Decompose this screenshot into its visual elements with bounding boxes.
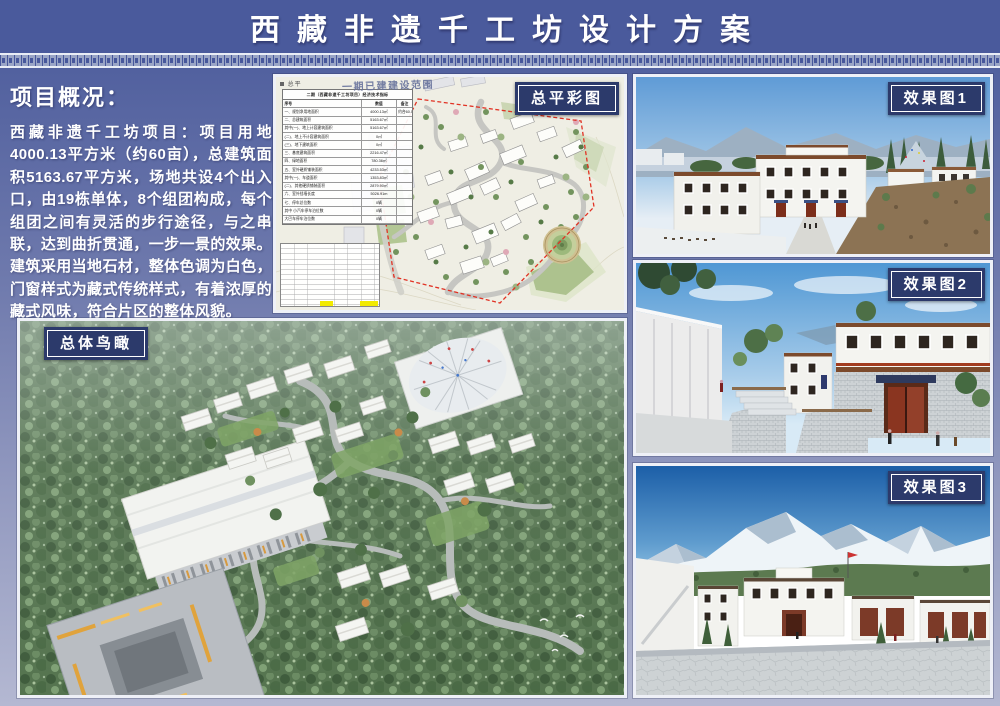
- table-row: (三)、地下建筑面积 0㎡: [283, 141, 412, 149]
- render1-badge: 效果图1: [888, 82, 985, 115]
- table-row: (二)、地上不计容建筑面积 0㎡: [283, 133, 412, 141]
- table-row: 六、室外挡墙长度 5026.91m: [283, 191, 412, 199]
- table-row: 七、停车总位数 0辆: [283, 199, 412, 207]
- site-plan-badge: 总平彩图: [515, 82, 619, 115]
- project-overview-text: 西藏非遗千工坊项目：项目用地4000.13平方米（约60亩），总建筑面积5163…: [10, 122, 272, 324]
- render2-badge: 效果图2: [888, 268, 985, 301]
- table-row: 其中(一)、车道面积 1353.83㎡: [283, 174, 412, 182]
- project-overview: 项目概况： 西藏非遗千工坊项目：项目用地4000.13平方米（约60亩），总建筑…: [10, 80, 272, 324]
- table-row: 一、规划净用地面积 4000.13㎡ 约合60.00亩: [283, 108, 412, 116]
- highlight-cell: [360, 301, 378, 306]
- economic-indicator-table: 二期（西藏非遗千工坊项目）经济技术指标 序号 数值 备注 一、规划净用地面积 4…: [282, 89, 413, 225]
- site-plan-corner-label: 总平: [280, 79, 302, 88]
- table-row: 二、总建筑面积 5163.67㎡: [283, 117, 412, 125]
- poster: 西藏非遗千工坊设计方案 项目概况： 西藏非遗千工坊项目：项目用地4000.13平…: [0, 0, 1000, 706]
- tibetan-border-pattern: [0, 53, 1000, 68]
- aerial-view-panel: 总体鸟瞰: [17, 318, 627, 698]
- poster-header: 西藏非遗千工坊设计方案: [0, 0, 1000, 53]
- economic-table-rows: 一、规划净用地面积 4000.13㎡ 约合60.00亩 二、总建筑面积 5163…: [283, 108, 412, 224]
- legend-square-icon: [280, 82, 284, 86]
- circular-plaza: [543, 226, 581, 264]
- aerial-view-image: [20, 321, 624, 695]
- render2-panel: 效果图2: [633, 260, 993, 456]
- render3-panel: 效果图3: [633, 463, 993, 698]
- table-row: 其中(一)、地上计容建筑面积 5163.67㎡: [283, 125, 412, 133]
- site-plan-annotation: 一期已建建设范围: [342, 76, 434, 93]
- table-row: 四、绿地面积 780.36㎡: [283, 158, 412, 166]
- render3-badge: 效果图3: [888, 471, 985, 504]
- table-row: (二)、其他硬质铺装面积 2879.90㎡: [283, 183, 412, 191]
- phase-area-table: [280, 243, 380, 307]
- table-row: 其中 小汽车停车泊位数 0辆: [283, 207, 412, 215]
- site-plan-panel: 二期（西藏非遗千工坊项目）经济技术指标 序号 数值 备注 一、规划净用地面积 4…: [273, 74, 627, 313]
- project-overview-heading: 项目概况：: [10, 80, 272, 112]
- highlight-cell: [320, 301, 333, 306]
- render1-panel: 效果图1: [633, 74, 993, 257]
- economic-table-header: 序号 数值 备注: [283, 100, 412, 108]
- table-row: 五、室外硬质铺装面积 4233.53㎡: [283, 166, 412, 174]
- aerial-view-badge: 总体鸟瞰: [44, 327, 148, 360]
- table-row: 三、基底建筑面积 2216.47㎡: [283, 150, 412, 158]
- poster-title: 西藏非遗千工坊设计方案: [233, 5, 767, 49]
- table-row: 大巴车停车泊位数 0辆: [283, 216, 412, 224]
